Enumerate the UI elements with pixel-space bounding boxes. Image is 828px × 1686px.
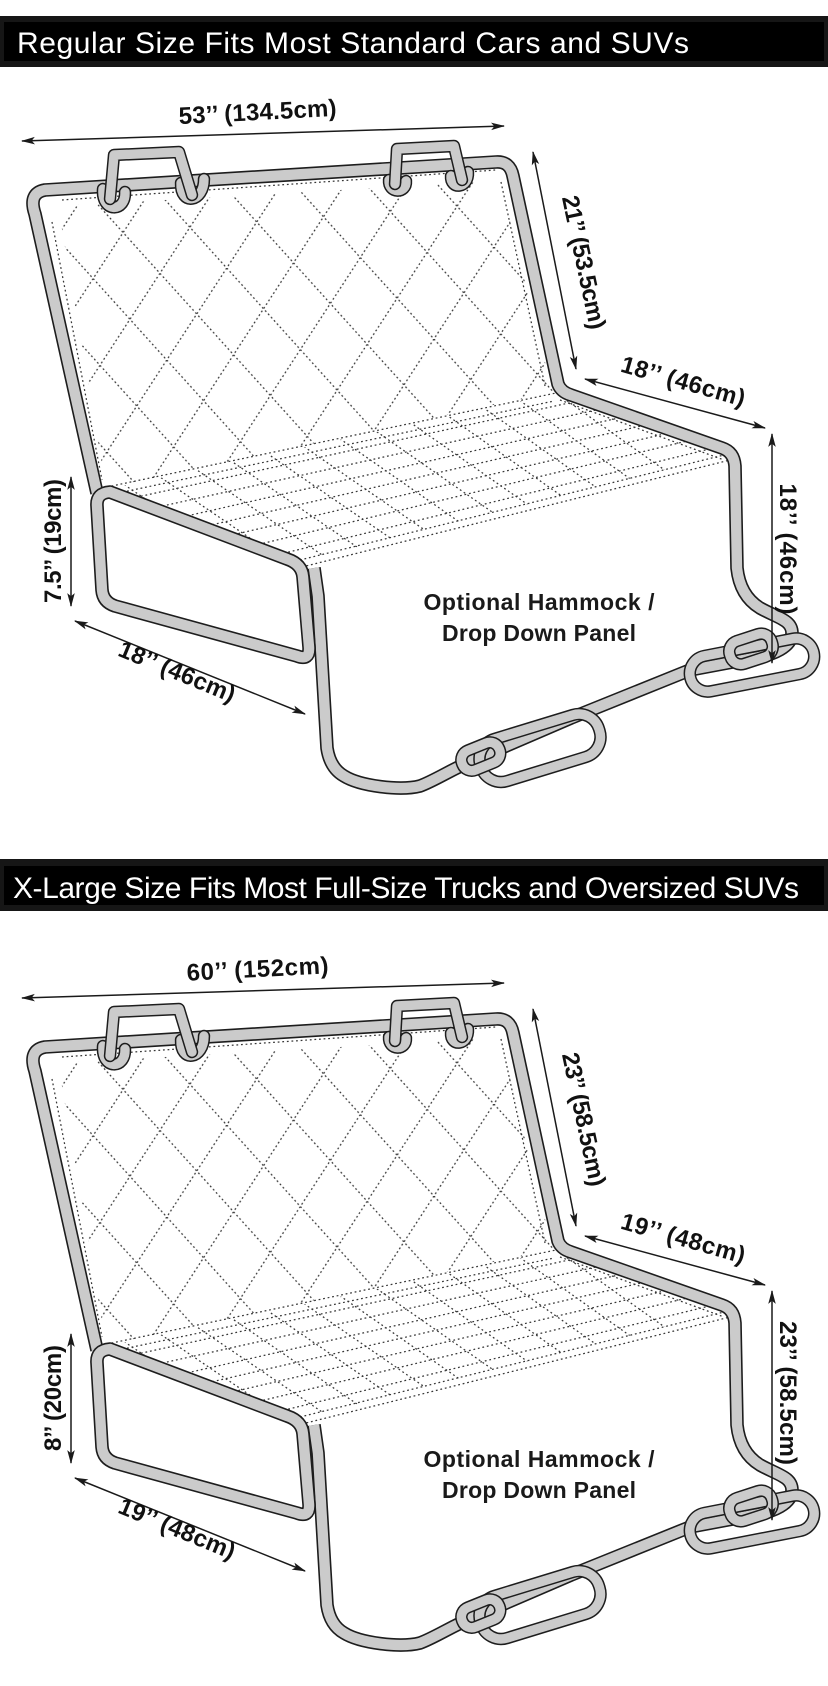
svg-text:18’’ (46cm): 18’’ (46cm) [774, 484, 801, 615]
svg-text:19’’ (48cm): 19’’ (48cm) [114, 1493, 239, 1565]
svg-text:8’’ (20cm): 8’’ (20cm) [40, 1345, 67, 1451]
svg-text:Regular Size Fits Most Standar: Regular Size Fits Most Standard Cars and… [17, 27, 689, 60]
svg-text:Optional Hammock /: Optional Hammock / [424, 589, 656, 615]
svg-text:19’’ (48cm): 19’’ (48cm) [618, 1208, 748, 1269]
svg-text:Drop Down Panel: Drop Down Panel [442, 1477, 636, 1503]
svg-text:18’’ (46cm): 18’’ (46cm) [114, 636, 239, 708]
svg-text:Optional Hammock /: Optional Hammock / [424, 1446, 656, 1472]
svg-text:23’’ (58.5cm): 23’’ (58.5cm) [774, 1321, 801, 1465]
svg-text:7.5’’ (19cm): 7.5’’ (19cm) [40, 479, 67, 603]
svg-text:60’’ (152cm): 60’’ (152cm) [186, 952, 329, 986]
svg-text:X-Large Size Fits Most Full-Si: X-Large Size Fits Most Full-Size Trucks … [13, 872, 799, 905]
svg-text:53’’ (134.5cm): 53’’ (134.5cm) [178, 95, 337, 130]
svg-text:18’’ (46cm): 18’’ (46cm) [618, 351, 748, 412]
svg-text:Drop Down Panel: Drop Down Panel [442, 620, 636, 646]
